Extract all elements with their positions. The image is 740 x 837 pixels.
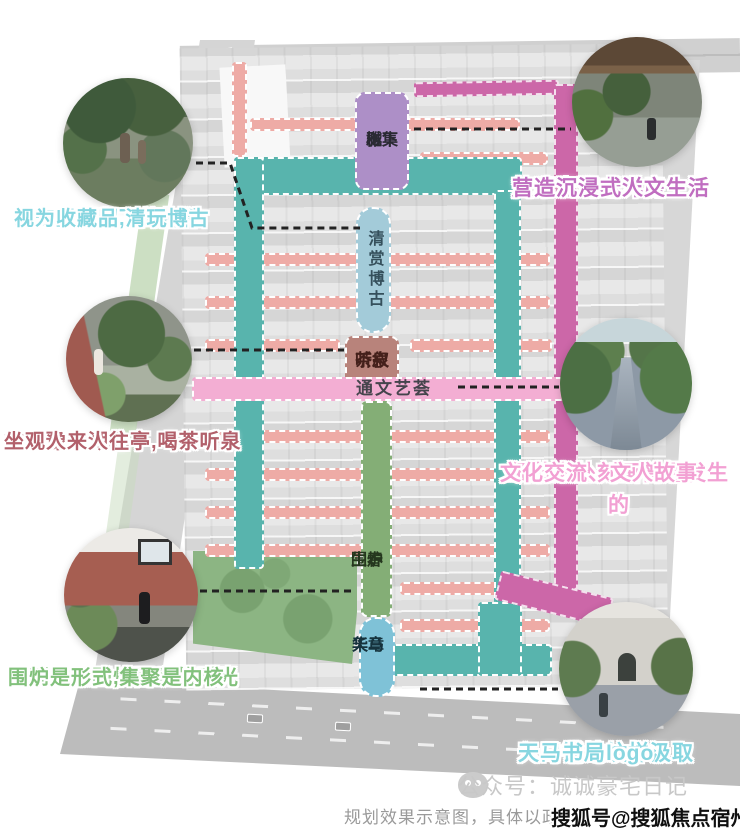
street-pavement [610,358,642,450]
statue [138,140,146,164]
teal-path-south [392,644,552,676]
annotation-line: 坐观人来人往 [4,427,130,457]
lane-strip [400,619,550,632]
person [139,592,150,624]
zone-label: 华章 [352,636,384,656]
annotation-line: 营造沉浸式人文生活 [512,173,710,205]
zone-label: 生春 [351,551,383,571]
lane-strip [205,339,340,352]
magenta-route-top [414,80,559,98]
annotation-line: 天马书局logo [518,738,654,770]
disclaimer-text: 规划效果示意图，具体以政府 [344,803,578,828]
annotation-line: 文化交流、文人故事 [500,458,698,490]
window [138,539,172,565]
zone-label: 雅集 [366,131,398,151]
gate-arch [618,653,636,681]
zone-tianma-huazhang [359,617,395,697]
person [599,693,608,717]
white-building [219,64,290,167]
photo-tree-lined-street [560,318,692,450]
car [335,722,351,732]
photo-entrance-gate [559,602,693,736]
person [647,118,656,140]
zone-label: 茶叙 [355,350,389,371]
photo-shanghai-villa-courtyard [572,37,702,167]
zone-qingshang-bogu: 清赏博古 [356,207,391,333]
wechat-watermark-text: 公众号：诚诚豪宅日记 [458,769,688,801]
photo-brick-courtyard [64,528,198,662]
masterplan-canvas: 樾下 雅集 清赏博古 听泉 茶叙 通文艺荟 围炉 生春 天马 华章 [0,0,740,837]
car [247,714,263,724]
person [94,349,103,375]
lane-strip [410,339,552,352]
lane-strip [232,62,247,157]
annotation-line: 视为收藏品,清玩博古 [14,204,210,234]
teal-path-east [494,190,521,618]
teal-path-south-connector [478,602,522,676]
zone-yuexia-yaji: 樾下 雅集 [355,92,409,190]
sohu-watermark: 搜狐号@搜狐焦点宿州站 [551,802,740,831]
photo-heritage-artifacts [63,78,193,208]
statue [120,133,130,163]
zone-label: 清赏博古 [364,230,384,310]
zone-weilu-shengchun-band [361,401,392,617]
zone-tongwen-yihui-label: 通文艺荟 [356,378,432,399]
teal-path-west [234,157,264,569]
annotation-line: 围炉是形式,集聚是内核 [8,663,225,693]
photo-courtyard-pavilion [66,296,192,422]
